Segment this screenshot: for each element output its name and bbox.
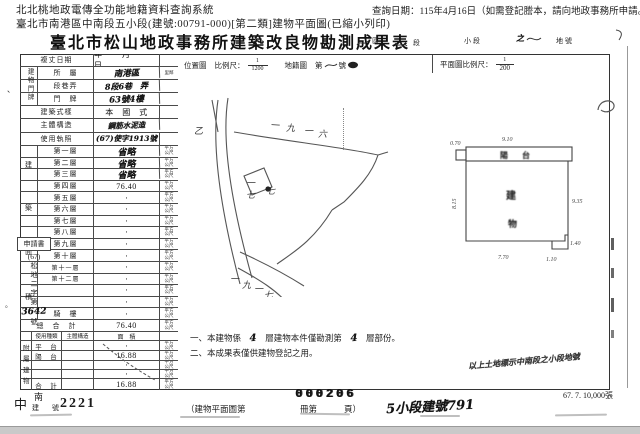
svg-text:一: 一 [304,126,314,136]
svg-text:六: 六 [318,129,328,139]
unit-label: 平方公尺 [164,361,174,369]
balcony-char2: 台 [522,150,530,160]
handwritten-mark [614,28,626,42]
plan-dimensions: 9.10 0.70 8.15 9.35 7.70 1.10 1.40 [450,137,583,263]
total-value: 76.40 [94,320,160,331]
margin-annotation-vertical: 松地二字第 [29,262,39,307]
floor-plan-header: 平面圖比例尺： 1 200 [440,57,517,72]
svg-text:七: 七 [264,290,274,297]
balcony-char: 陽 [500,150,508,160]
license-label: 使用執照 [20,133,94,145]
reg-number-stamp: 2221 [60,396,96,412]
address-belong-unit: 里鄰 [164,71,174,76]
svg-text:9.10: 9.10 [502,137,513,143]
sheet-prefix: 第 [315,60,323,71]
table-row: 第四層 76.40 平方公尺 [20,181,178,193]
annex-label: 合 計 [32,379,62,390]
scan-smudge [300,413,350,416]
margin-annotation: 申請書 (67) 松地二字第 3642 號 [17,237,51,327]
structure-label: 主體構造 [20,119,94,131]
margin-annotation-suffix: 號 [17,317,51,327]
floor-value: · [94,285,160,296]
floor-value: · [94,216,160,227]
floor-label: 第三層 [38,169,94,180]
floor-value: · [94,204,160,215]
section-name-char: 中 [14,394,27,413]
floor-value: · [94,262,160,273]
annex-header-area: 面 積 [94,332,160,340]
floor-label: 第四層 [38,181,94,192]
annex-group-char: 屬 [23,353,30,363]
unit-label: 平方公尺 [164,228,174,238]
unit-label: 平方公尺 [164,158,174,168]
binding-mark [611,330,614,338]
handwritten-mark [323,60,339,70]
unit-label: 平方公尺 [164,262,174,272]
unit-label: 平方公尺 [164,251,174,261]
svg-text:8.15: 8.15 [452,199,458,210]
parcel-1917: 一 [230,274,240,284]
svg-text:七: 七 [246,190,256,200]
style-value: 本 國 式 [94,106,160,118]
scan-smudge [555,414,607,417]
handwritten-slash [95,340,165,385]
handwritten-new-building-no: 5小段建號791 [386,394,475,418]
table-row: 使用執照 (67)使字1913號 [20,133,178,146]
unit-label: 平方公尺 [164,370,174,378]
title-section-label: 段 [413,38,420,48]
fold-mark [343,108,345,150]
margin-annotation-boxed: 申請書 [17,237,51,251]
address-group-label: 建物門牌 [23,68,35,102]
query-date: 查詢日期：115年4月16日（如需登記謄本，請向地政事務所申請。） [372,3,640,17]
ink-blot [346,60,360,70]
table-row: 第六層 · 平方公尺 [20,204,178,216]
binding-mark [611,298,614,312]
scan-speck: 。 [5,300,12,310]
floor-value: · [94,308,160,319]
svg-text:九: 九 [286,123,296,133]
floor-value: · [94,274,160,285]
table-row: 第三層 省略 平方公尺 [20,169,178,181]
floor-value: · [94,250,160,261]
unit-label: 平方公尺 [164,297,174,307]
section-name-char2: 南 [34,390,43,403]
annex-group-char: 物 [23,375,30,385]
table-row: 第七層 · 平方公尺 [20,216,178,228]
floor-value: 省略 [94,145,160,158]
plan-characters: 陽 台 建 物 [500,150,530,229]
address-belong-value: 南港區 [94,66,160,80]
parcel-number-labels: 一 九 一 六 乙 一 七 七 一 九 一 七 [194,120,328,297]
unit-label: 平方公尺 [164,181,174,191]
floor-plan-drawing: 陽 台 建 物 9.10 0.70 8.15 9.35 7.70 1.10 1.… [450,125,615,273]
note-2: 二、本成果表僅供建物登記之用。 [190,347,318,359]
parcel-1916: 一 [270,120,281,131]
unit-label: 平方公尺 [164,146,174,156]
location-scale-fraction: 1 1200 [248,58,268,72]
svg-text:0.70: 0.70 [450,141,461,147]
survey-date-value: 年 月 日 [94,54,160,66]
svg-text:1.40: 1.40 [570,240,581,247]
svg-text:一: 一 [254,284,264,294]
note-1: 一、本建物係 4 層建物本件僅勘測第 4 層部份。 [190,332,400,344]
binding-mark [611,238,614,250]
address-number-label: 門 牌 [38,93,94,105]
unit-label: 平方公尺 [164,170,174,180]
floor-value: · [94,192,160,203]
annex-group-char: 建 [23,364,30,374]
floor-plan-scale-label: 平面圖比例尺： [440,59,493,70]
balcony-outline [466,147,572,161]
header-divider [432,55,433,73]
building-char2: 物 [508,218,517,229]
table-row: 門 牌 63號4樓 [20,93,178,106]
unit-label: 平方公尺 [164,193,174,203]
title-parcelno-label: 地號 [556,36,574,46]
floor-label: 第一層 [38,146,94,157]
cadastral-map-label: 地籍圖 [285,60,308,71]
floor-label: 第六層 [38,204,94,215]
serial-number-stamp: 000206 [295,387,356,401]
note-1-hw-floor: 4 [344,333,364,345]
road-mark: 乙 [194,126,203,136]
location-scale-label: 比例尺： [215,60,245,71]
unit-label: 平方公尺 [164,286,174,296]
annex-header-structure: 主體構造 [62,332,94,340]
annex-label: 陽 台 [32,351,62,360]
floor-plan-scale-fraction: 1 200 [496,57,515,72]
area-group-char: 築 [25,203,32,213]
note-1-hw-floors: 4 [243,333,263,345]
system-title: 北北桃地政電傳全功能地籍資料查詢系統 [16,2,214,17]
location-map-sketch: 一 九 一 六 乙 一 七 七 一 九 一 七 [182,92,408,297]
handwritten-mark [394,40,408,50]
unit-label: 平方公尺 [164,216,174,226]
unit-label: 平方公尺 [164,380,174,390]
floor-value: · [94,297,160,308]
paper-edge-line [627,46,628,388]
plan-book-label-1: （建物平面圖第 [186,403,246,415]
unit-label: 平方公尺 [164,341,174,350]
binding-mark [611,268,614,278]
scan-speck: 、 [7,84,15,95]
scan-smudge [420,415,460,417]
handwritten-mark [356,38,370,48]
address-belong-label: 所 屬 [38,67,94,79]
svg-text:九: 九 [242,280,252,290]
floor-value: · [94,239,160,250]
unit-label: 平方公尺 [164,204,174,214]
margin-annotation-number: 3642 [17,306,51,317]
unit-label: 平方公尺 [164,309,174,319]
floor-value: · [94,227,160,238]
svg-text:一: 一 [246,178,256,188]
floor-label: 第七層 [38,216,94,227]
building-outline [466,161,568,249]
scan-edge-bar [0,427,640,434]
floor-label: 第二層 [38,158,94,169]
scan-smudge [180,416,240,418]
floor-value: 省略 [94,168,160,181]
floor-value: 76.40 [94,181,160,192]
title-district-label: 區 [372,36,379,46]
svg-text:七: 七 [266,186,276,196]
building-char: 建 [505,189,517,202]
sheet-suffix: 號 [339,60,347,71]
address-lane-value: 8段6巷 弄 [94,79,160,93]
handwritten-mark [526,34,542,44]
scan-smudge [30,414,72,417]
title-parcel-hw: 之 [516,33,524,44]
unit-label: 平方公尺 [164,239,174,249]
address-lane-label: 段巷弄 [38,80,94,92]
structure-value: 鋼筋水泥造 [94,118,160,133]
table-row: 主體構造 鋼筋水泥造 [20,119,178,132]
unit-label: 平方公尺 [164,321,174,331]
table-row: 第一層 省略 平方公尺 [20,146,178,158]
scan-mark [596,96,618,116]
annex-label: 平 台 [32,341,62,350]
table-row: 第五層 · 平方公尺 [20,192,178,204]
svg-text:9.35: 9.35 [572,199,583,205]
scanned-document-page: 北北桃地政電傳全功能地籍資料查詢系統 查詢日期：115年4月16日（如需登記謄本… [0,0,640,434]
area-group-char: 建 [25,160,32,170]
style-label: 建築式樣 [20,106,94,118]
location-map-header: 位置圖 比例尺： 1 1200 地籍圖 第 號 [184,58,360,72]
annex-group-char: 附 [23,342,30,352]
svg-text:1.10: 1.10 [546,257,557,263]
title-subsection-label: 小段 [464,36,482,46]
annex-header-kind: 使用種類 [32,332,62,340]
address-number-value: 63號4樓 [94,92,160,106]
location-map-label: 位置圖 [184,60,207,71]
license-value: (67)使字1913號 [94,133,160,145]
unit-label: 平方公尺 [164,274,174,284]
reg-number-label: 建 號 [32,403,62,413]
unit-label: 平方公尺 [164,351,174,360]
survey-date-label: 複丈日期 [20,54,94,66]
floor-label: 第五層 [38,192,94,203]
margin-annotation-paren: (67) [17,252,51,261]
svg-text:7.70: 7.70 [498,255,509,261]
print-info: 67. 7. 10,000張 [563,390,613,401]
